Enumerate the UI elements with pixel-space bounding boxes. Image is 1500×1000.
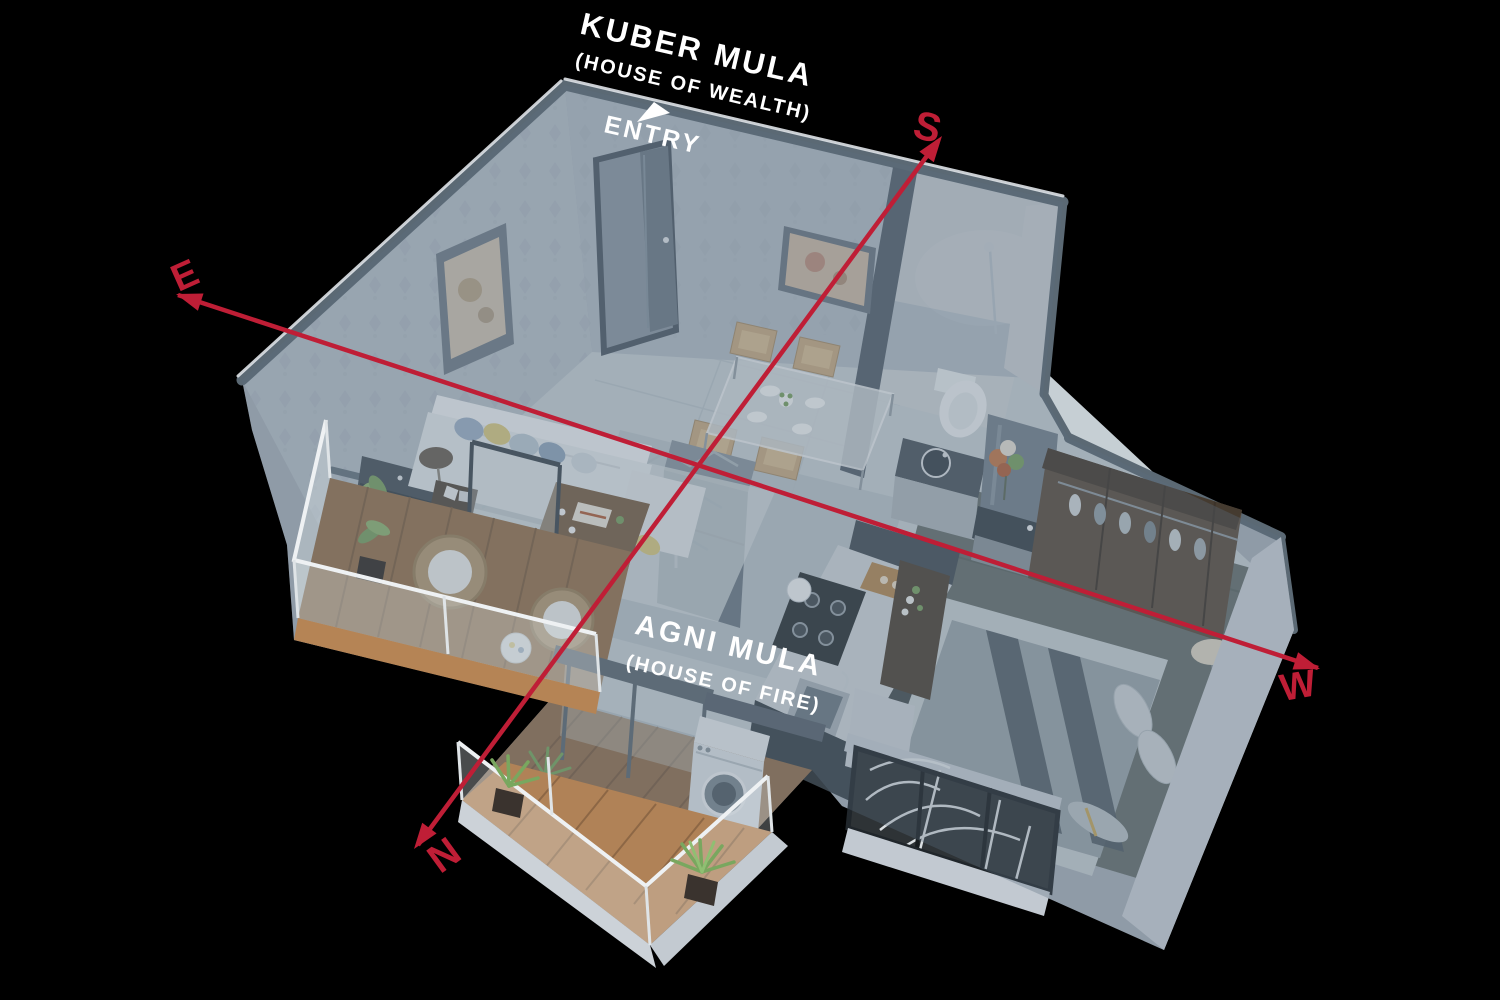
- vastu-floor-plan-scene: S N E W KUBER MULA (HOUSE OF WEALTH) ENT…: [0, 0, 1500, 1000]
- floor-plan-svg: S N E W KUBER MULA (HOUSE OF WEALTH) ENT…: [0, 0, 1500, 1000]
- compass-label-west: W: [1277, 662, 1320, 710]
